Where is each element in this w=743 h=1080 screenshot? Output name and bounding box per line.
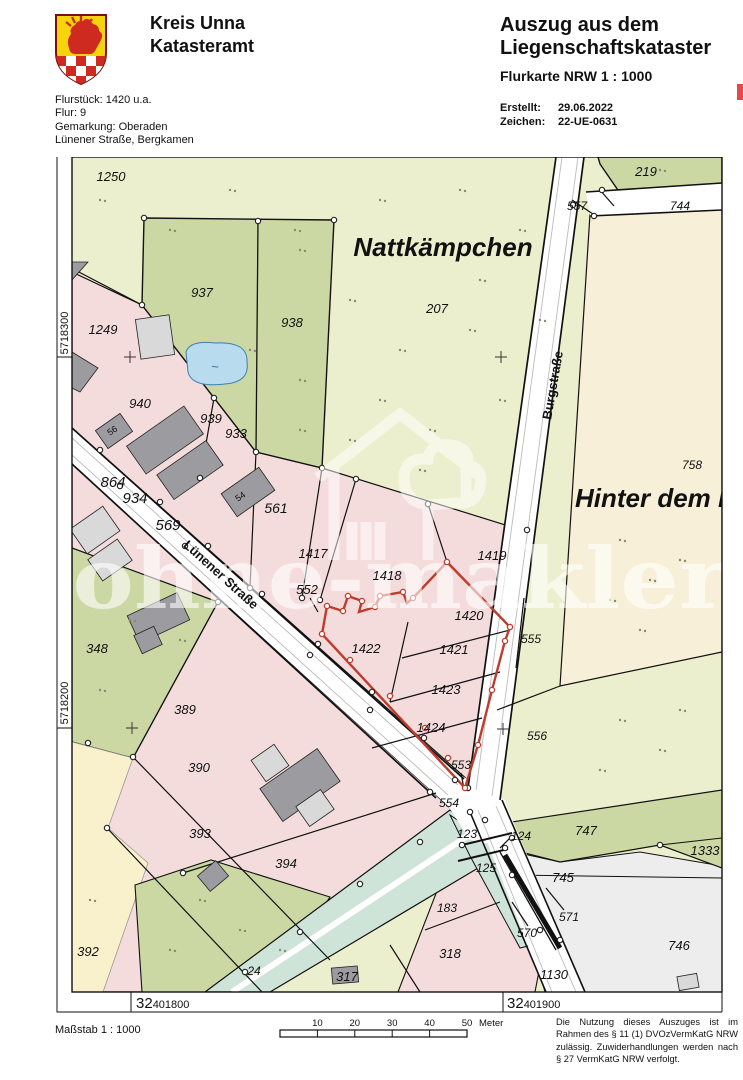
label-555: 555 — [521, 632, 541, 646]
label-864: 864 — [100, 474, 125, 491]
label-24: 24 — [246, 964, 261, 978]
label-745: 745 — [552, 870, 574, 885]
label-1421: 1421 — [440, 642, 469, 657]
label-hinter-dem-b: Hinter dem B — [575, 483, 737, 513]
label-744: 744 — [670, 199, 690, 213]
info-line: Flurstück: 1420 u.a. — [55, 94, 194, 107]
map-type-subtitle: Flurkarte NRW 1 : 1000 — [500, 68, 652, 84]
grid-label-5718200: 5718200 — [59, 682, 71, 725]
info-line: Lünener Straße, Bergkamen — [55, 134, 194, 147]
label-317: 317 — [336, 969, 358, 984]
document-meta: Erstellt:29.06.2022 Zeichen:22-UE-0631 — [500, 101, 617, 130]
svg-text:~: ~ — [211, 359, 219, 374]
grid-label-32401800: 32401800 — [136, 995, 189, 1012]
reference-label: Zeichen: — [500, 115, 558, 129]
label-1422: 1422 — [352, 641, 382, 656]
label-570: 570 — [517, 926, 537, 940]
scale-tick-40: 40 — [424, 1018, 435, 1029]
label-1130: 1130 — [540, 967, 569, 982]
pond: ~ — [186, 342, 247, 384]
label-1423: 1423 — [432, 682, 462, 697]
scale-tick-30: 30 — [387, 1018, 398, 1029]
red-margin-mark — [737, 84, 743, 100]
scale-tick-20: 20 — [350, 1018, 361, 1029]
label-nattkämpchen: Nattkämpchen — [353, 232, 532, 262]
label-124: 124 — [511, 829, 531, 843]
label-746: 746 — [668, 938, 690, 953]
label-392: 392 — [77, 944, 99, 959]
legal-notice: Die Nutzung dieses Auszuges ist im Rahme… — [556, 1016, 738, 1066]
label-747: 747 — [575, 823, 597, 838]
grid-label-5718300: 5718300 — [59, 312, 71, 355]
label-552: 552 — [296, 582, 318, 597]
label-1417: 1417 — [299, 546, 329, 561]
created-label: Erstellt: — [500, 101, 558, 115]
map-content: ~ — [70, 157, 737, 992]
label-125: 125 — [476, 861, 496, 875]
label-1419: 1419 — [478, 548, 507, 563]
label-1420: 1420 — [455, 608, 485, 623]
cadastral-map: ~ — [0, 157, 743, 1017]
label-939: 939 — [200, 411, 222, 426]
label-933: 933 — [225, 426, 247, 441]
label-557: 557 — [567, 199, 588, 213]
label-318: 318 — [439, 946, 461, 961]
label-569: 569 — [155, 517, 181, 534]
label-219: 219 — [634, 164, 657, 179]
title-line1: Auszug aus dem — [500, 14, 743, 37]
label-183: 183 — [437, 901, 457, 915]
info-line: Flur: 9 — [55, 107, 194, 120]
label-207: 207 — [425, 301, 448, 316]
label-934: 934 — [122, 490, 147, 507]
label-571: 571 — [559, 910, 579, 924]
label-1250: 1250 — [97, 169, 127, 184]
label-348: 348 — [86, 641, 108, 656]
label-393: 393 — [189, 826, 211, 841]
scale-bar-rect — [280, 1030, 467, 1037]
label-1418: 1418 — [373, 568, 403, 583]
label-1333: 1333 — [691, 843, 721, 858]
office-line1: Kreis Unna — [150, 12, 254, 35]
scale-tick-10: 10 — [312, 1018, 323, 1029]
label-554: 554 — [439, 796, 459, 810]
label-940: 940 — [129, 396, 151, 411]
label-394: 394 — [275, 856, 297, 871]
label-123: 123 — [457, 827, 477, 841]
label-1424: 1424 — [417, 720, 446, 735]
label-938: 938 — [281, 315, 303, 330]
issuing-office: Kreis Unna Katasteramt — [150, 12, 254, 57]
coat-of-arms — [55, 14, 107, 86]
label-390: 390 — [188, 760, 210, 775]
created-value: 29.06.2022 — [558, 101, 613, 115]
cadastral-extract-page: Kreis Unna Katasteramt Flurstück: 1420 u… — [0, 0, 743, 1080]
document-title: Auszug aus dem Liegenschaftskataster — [500, 14, 743, 60]
label-561: 561 — [264, 500, 287, 516]
parcel-info-block: Flurstück: 1420 u.a.Flur: 9Gemarkung: Ob… — [55, 94, 194, 148]
title-line2: Liegenschaftskataster — [500, 37, 743, 60]
scale-unit: Meter — [479, 1018, 503, 1029]
label-553: 553 — [451, 758, 471, 772]
office-line2: Katasteramt — [150, 35, 254, 58]
info-line: Gemarkung: Oberaden — [55, 121, 194, 134]
reference-value: 22-UE-0631 — [558, 115, 617, 129]
grid-label-32401900: 32401900 — [507, 995, 560, 1012]
label-389: 389 — [174, 702, 196, 717]
label-758: 758 — [682, 458, 702, 472]
label-1249: 1249 — [89, 322, 118, 337]
scale-tick-50: 50 — [462, 1018, 473, 1029]
label-937: 937 — [191, 285, 213, 300]
label-556: 556 — [527, 729, 547, 743]
